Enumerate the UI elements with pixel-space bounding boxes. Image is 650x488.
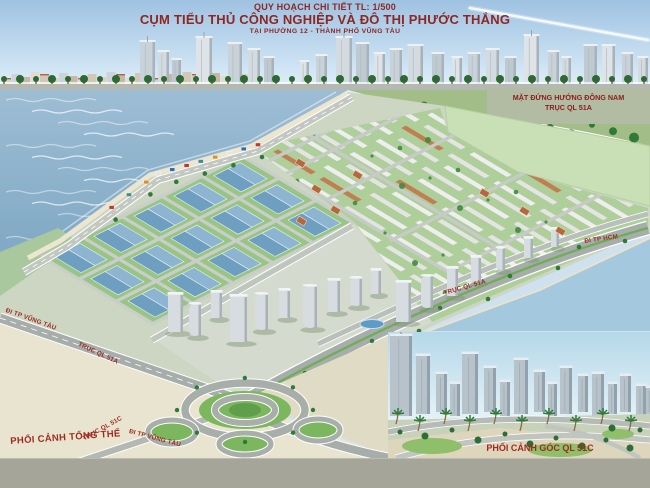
bottom-bar xyxy=(0,458,650,488)
inset-corner-view xyxy=(388,327,650,458)
title-line2: CỤM TIỂU THỦ CÔNG NGHIỆP VÀ ĐÔ THỊ PHƯỚC… xyxy=(0,13,650,27)
skyline-baseline xyxy=(0,82,650,84)
elevation-view-label-line1: MẶT ĐỨNG HƯỚNG ĐÔNG NAM xyxy=(487,93,650,102)
title-line3: TẠI PHƯỜNG 12 - THÀNH PHỐ VŨNG TÀU xyxy=(0,28,650,35)
bottom-bar-edge xyxy=(0,458,650,459)
inset-green-island xyxy=(402,438,462,454)
rendered-scene xyxy=(0,0,650,488)
water-feature xyxy=(360,320,384,329)
masterplan-poster: QUY HOẠCH CHI TIẾT TL: 1/500 CỤM TIỂU TH… xyxy=(0,0,650,488)
corner-view-caption: PHỐI CẢNH GÓC QL 51C xyxy=(455,443,625,453)
elevation-view-label-line2: TRỤC QL 51A xyxy=(487,103,650,112)
